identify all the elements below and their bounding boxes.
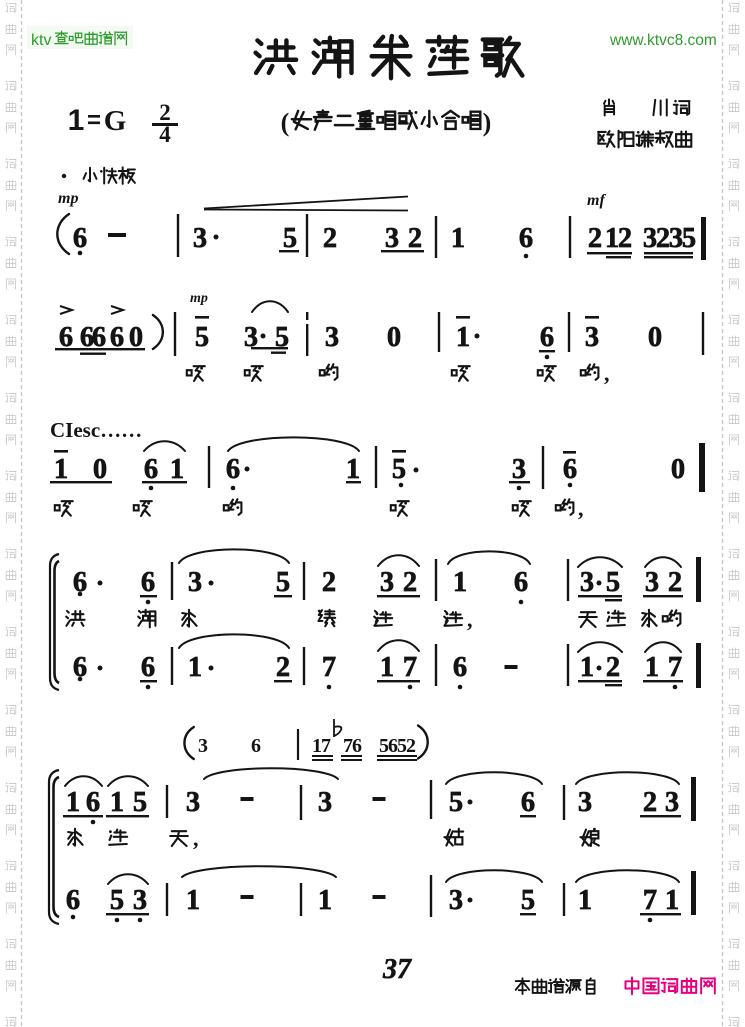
svg-text:1: 1 — [665, 885, 679, 916]
svg-text:5: 5 — [133, 787, 147, 818]
svg-text:1: 1 — [188, 652, 202, 683]
svg-text:6: 6 — [86, 787, 100, 818]
svg-text:3: 3 — [325, 322, 339, 353]
svg-text:1: 1 — [645, 652, 659, 683]
svg-text:3: 3 — [449, 885, 463, 916]
svg-text:7: 7 — [668, 652, 682, 683]
svg-text:1: 1 — [318, 885, 332, 916]
svg-text:3: 3 — [380, 567, 394, 598]
svg-text:1: 1 — [66, 787, 80, 818]
svg-text:3: 3 — [578, 787, 592, 818]
svg-text:2: 2 — [322, 567, 336, 598]
svg-text:): ) — [483, 108, 492, 137]
svg-text:6: 6 — [453, 652, 467, 683]
svg-text:mf: mf — [587, 192, 606, 209]
svg-text:6: 6 — [226, 454, 240, 485]
svg-text:1: 1 — [453, 567, 467, 598]
svg-text:=: = — [87, 107, 101, 134]
svg-text:7: 7 — [403, 652, 417, 683]
svg-text:2: 2 — [403, 567, 417, 598]
svg-text:mp: mp — [58, 190, 78, 207]
svg-text:3: 3 — [512, 454, 526, 485]
svg-text:5: 5 — [110, 885, 124, 916]
svg-text:3: 3 — [665, 787, 679, 818]
svg-text:3: 3 — [385, 223, 399, 254]
svg-text:5: 5 — [392, 454, 406, 485]
svg-text:5: 5 — [606, 567, 620, 598]
svg-text:5: 5 — [449, 787, 463, 818]
svg-text:0: 0 — [671, 454, 685, 485]
svg-text:,: , — [604, 361, 610, 386]
svg-text:1: 1 — [380, 652, 394, 683]
svg-text:4: 4 — [159, 122, 171, 147]
svg-text:6: 6 — [521, 787, 535, 818]
svg-text:2: 2 — [406, 735, 416, 757]
svg-text:5: 5 — [682, 223, 696, 254]
svg-text:3: 3 — [580, 567, 594, 598]
svg-text:0: 0 — [387, 322, 401, 353]
svg-text:2: 2 — [276, 652, 290, 683]
svg-text:CIesc……: CIesc…… — [50, 418, 142, 442]
svg-text:6: 6 — [141, 652, 155, 683]
svg-text:6: 6 — [514, 567, 528, 598]
svg-text:2: 2 — [588, 223, 602, 254]
svg-text:6: 6 — [563, 454, 577, 485]
svg-text:6: 6 — [144, 454, 158, 485]
svg-text:3: 3 — [133, 885, 147, 916]
svg-text:5: 5 — [521, 885, 535, 916]
svg-text:1: 1 — [578, 885, 592, 916]
svg-text:5: 5 — [283, 223, 297, 254]
svg-text:0: 0 — [648, 322, 662, 353]
svg-text:,: , — [578, 496, 584, 521]
svg-text:,: , — [467, 607, 473, 632]
svg-text:1: 1 — [54, 454, 68, 485]
svg-text:6: 6 — [519, 223, 533, 254]
svg-text:,: , — [193, 826, 199, 851]
svg-text:1: 1 — [110, 787, 124, 818]
svg-text:(: ( — [281, 108, 290, 137]
svg-text:www.ktvc8.com: www.ktvc8.com — [609, 32, 717, 49]
svg-text:5: 5 — [276, 567, 290, 598]
svg-text:2: 2 — [618, 223, 632, 254]
svg-text:2: 2 — [408, 223, 422, 254]
svg-text:G: G — [104, 105, 127, 137]
svg-text:mp: mp — [190, 291, 208, 306]
svg-text:ktv: ktv — [31, 32, 51, 49]
svg-text:1: 1 — [68, 104, 85, 137]
svg-text:5: 5 — [195, 322, 209, 353]
svg-text:2: 2 — [323, 223, 337, 254]
svg-text:6: 6 — [352, 735, 362, 757]
svg-text:1: 1 — [186, 885, 200, 916]
svg-text:3: 3 — [645, 567, 659, 598]
svg-text:7: 7 — [321, 735, 331, 757]
svg-text:1: 1 — [170, 454, 184, 485]
svg-text:3: 3 — [186, 787, 200, 818]
svg-text:2: 2 — [643, 787, 657, 818]
svg-text:37: 37 — [382, 954, 412, 985]
svg-text:3: 3 — [193, 223, 207, 254]
svg-text:6: 6 — [540, 322, 554, 353]
svg-text:7: 7 — [643, 885, 657, 916]
svg-text:3: 3 — [198, 735, 208, 757]
svg-text:1: 1 — [580, 652, 594, 683]
svg-text:7: 7 — [322, 652, 336, 683]
svg-text:6: 6 — [141, 567, 155, 598]
svg-text:2: 2 — [606, 652, 620, 683]
svg-text:0: 0 — [93, 454, 107, 485]
svg-text:6: 6 — [73, 223, 87, 254]
svg-text:3: 3 — [188, 567, 202, 598]
svg-text:1: 1 — [451, 223, 465, 254]
svg-text:1: 1 — [456, 322, 470, 353]
svg-text:2: 2 — [668, 567, 682, 598]
svg-text:6: 6 — [251, 735, 261, 757]
svg-text:3: 3 — [585, 322, 599, 353]
svg-text:1: 1 — [346, 454, 360, 485]
svg-text:3: 3 — [318, 787, 332, 818]
svg-text:6: 6 — [66, 885, 80, 916]
